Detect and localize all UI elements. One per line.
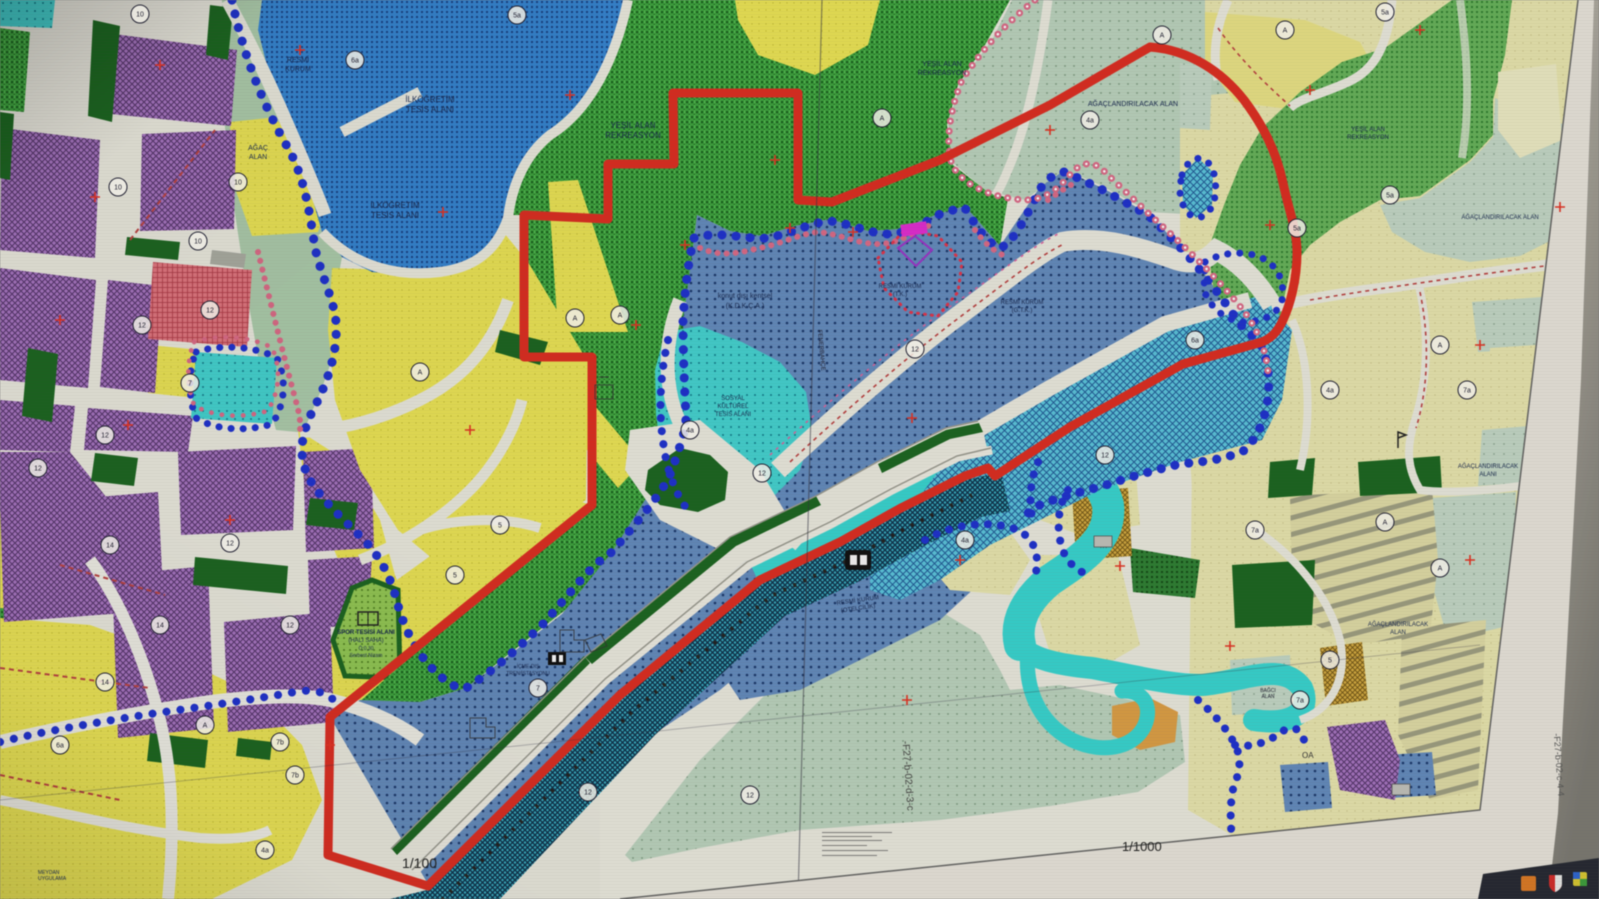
svg-text:BAĞCI: BAĞCI	[1260, 687, 1276, 694]
svg-text:10: 10	[194, 239, 202, 246]
svg-text:TESİS ALANI: TESİS ALANI	[715, 411, 751, 418]
svg-text:ALANI: ALANI	[1479, 472, 1497, 478]
svg-text:REKREASYON: REKREASYON	[918, 70, 967, 77]
svg-text:7b: 7b	[276, 740, 284, 747]
svg-text:12: 12	[746, 793, 754, 800]
svg-text:5: 5	[453, 573, 457, 580]
svg-text:12: 12	[286, 623, 294, 630]
svg-text:6a: 6a	[351, 58, 359, 65]
svg-text:İÇME-DIŞ: İÇME-DIŞ	[517, 663, 540, 670]
svg-text:14: 14	[106, 543, 114, 550]
svg-text:ALAN: ALAN	[1390, 630, 1406, 636]
svg-text:A: A	[203, 723, 208, 730]
svg-text:Ö:0.30: Ö:0.30	[358, 645, 373, 652]
svg-text:Serbest Nizam: Serbest Nizam	[350, 653, 383, 659]
svg-text:(K.D.K.Ç.A.): (K.D.K.Ç.A.)	[726, 303, 765, 310]
svg-text:10: 10	[114, 185, 122, 192]
svg-text:A: A	[1283, 28, 1288, 35]
svg-text:12: 12	[758, 471, 766, 478]
svg-text:TESİS ALANI: TESİS ALANI	[371, 211, 419, 220]
svg-text:A: A	[573, 316, 578, 323]
svg-text:A: A	[1160, 33, 1165, 40]
svg-text:İLKÖĞRETİM: İLKÖĞRETİM	[370, 201, 420, 210]
svg-text:KÜLTÜREL: KÜLTÜREL	[718, 403, 750, 410]
svg-text:UYGULAMA: UYGULAMA	[38, 876, 67, 882]
svg-text:A: A	[1438, 343, 1443, 350]
svg-text:12: 12	[34, 466, 42, 473]
svg-text:A: A	[618, 313, 623, 320]
svg-text:5: 5	[498, 523, 502, 530]
svg-text:12: 12	[911, 347, 919, 354]
svg-text:7b: 7b	[291, 773, 299, 780]
svg-text:(HALI SAHA): (HALI SAHA)	[348, 638, 383, 644]
svg-text:A: A	[1383, 520, 1388, 527]
svg-text:İLKÖĞRETİM: İLKÖĞRETİM	[405, 95, 455, 104]
svg-text:12: 12	[138, 323, 146, 330]
svg-text:7: 7	[188, 381, 192, 388]
svg-text:(T.K.): (T.K.)	[893, 292, 907, 298]
svg-text:5a: 5a	[513, 13, 521, 20]
svg-text:YEŞİL ALAN: YEŞİL ALAN	[922, 59, 961, 68]
svg-text:4a: 4a	[1086, 118, 1094, 125]
svg-text:14: 14	[101, 680, 109, 687]
svg-text:AĞAÇLANDIRILACAK ALAN: AĞAÇLANDIRILACAK ALAN	[1461, 214, 1538, 221]
svg-text:7a: 7a	[1296, 698, 1304, 705]
svg-text:6a: 6a	[56, 743, 64, 750]
svg-text:4a: 4a	[961, 538, 969, 545]
svg-text:RESMİ KURUM: RESMİ KURUM	[1001, 299, 1044, 306]
svg-text:5a: 5a	[1386, 193, 1394, 200]
svg-text:12: 12	[101, 433, 109, 440]
svg-text:12: 12	[1101, 453, 1109, 460]
svg-text:REKREASYON: REKREASYON	[605, 131, 661, 140]
svg-text:7a: 7a	[1463, 388, 1471, 395]
svg-text:YEŞİL ALAN: YEŞİL ALAN	[610, 121, 655, 130]
svg-text:5a: 5a	[1381, 10, 1389, 17]
svg-text:ALAN: ALAN	[1261, 694, 1274, 700]
svg-text:A: A	[880, 116, 885, 123]
svg-text:A: A	[418, 370, 423, 377]
svg-text:12: 12	[206, 308, 214, 315]
svg-text:7: 7	[536, 686, 540, 693]
svg-text:AĞAÇ: AĞAÇ	[248, 143, 268, 152]
svg-text:A: A	[1438, 566, 1443, 573]
svg-text:TREN/İSTASYONU: TREN/İSTASYONU	[506, 670, 550, 677]
svg-text:(G.T.K.): (G.T.K.)	[1012, 308, 1033, 314]
svg-text:5: 5	[1328, 658, 1332, 665]
svg-text:10: 10	[136, 12, 144, 19]
svg-text:6a: 6a	[1191, 338, 1199, 345]
svg-text:AĞAÇLANDIRILACAK ALAN: AĞAÇLANDIRILACAK ALAN	[1088, 99, 1178, 108]
svg-text:5a: 5a	[1293, 226, 1301, 233]
svg-text:10: 10	[234, 180, 242, 187]
svg-text:RESMİ: RESMİ	[287, 55, 309, 64]
svg-text:AĞAÇLANDIRILACAK: AĞAÇLANDIRILACAK	[1458, 463, 1518, 470]
svg-text:RESMİ KURUM: RESMİ KURUM	[879, 283, 922, 290]
svg-text:konut dışı kentsel: konut dışı kentsel	[718, 293, 773, 300]
svg-text:ALAN: ALAN	[249, 154, 267, 161]
svg-text:4a: 4a	[1326, 388, 1334, 395]
svg-text:4a: 4a	[261, 848, 269, 855]
svg-text:12: 12	[584, 790, 592, 797]
svg-text:7a: 7a	[1251, 528, 1259, 535]
svg-text:4a: 4a	[686, 428, 694, 435]
svg-text:SPOR TESİSİ ALANI: SPOR TESİSİ ALANI	[337, 629, 395, 636]
svg-text:KURUM: KURUM	[285, 66, 311, 73]
svg-text:12: 12	[226, 541, 234, 548]
svg-text:TESİS ALANI: TESİS ALANI	[406, 105, 454, 114]
svg-text:OA: OA	[1302, 751, 1314, 760]
svg-text:14: 14	[156, 623, 164, 630]
svg-text:AĞAÇLANDIRILACAK: AĞAÇLANDIRILACAK	[1368, 621, 1428, 628]
svg-text:SOSYAL: SOSYAL	[721, 396, 745, 402]
svg-text:YEŞİL ALAN: YEŞİL ALAN	[1351, 126, 1385, 133]
svg-text:REKREASYON: REKREASYON	[1347, 135, 1389, 141]
